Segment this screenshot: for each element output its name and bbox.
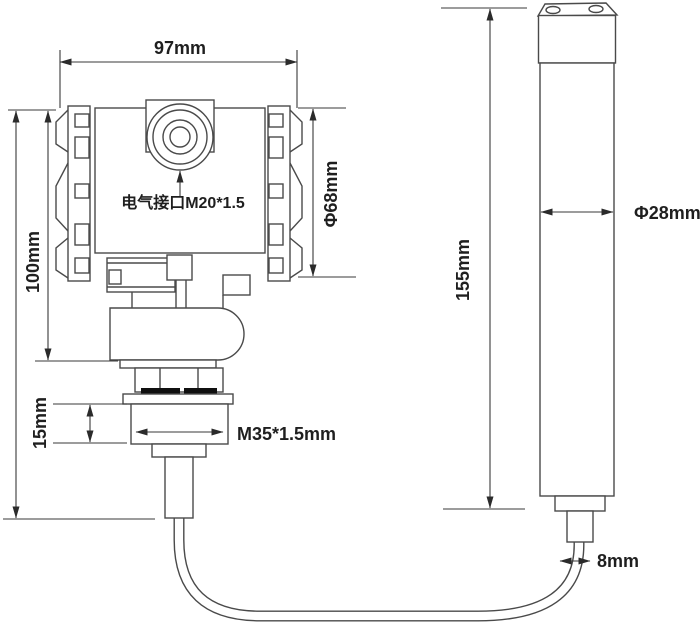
dim-label-thread-height: 15mm [30,397,50,449]
connection-cable [179,514,579,616]
left-fin-cap [56,106,90,281]
dim-head-width: 97mm [60,38,297,108]
lower-bracket [107,255,250,308]
block-lip [120,360,216,368]
dim-label-thread-spec: M35*1.5mm [237,424,336,444]
dim-label-head-diameter: Φ68mm [321,161,341,228]
flange-washer [123,394,233,404]
probe-body [540,63,614,496]
probe-cap [539,16,616,64]
dim-probe-length: 155mm [441,8,527,509]
dim-label-probe-diameter: Φ28mm [634,203,700,223]
process-connection-block [110,308,244,360]
dim-label-head-width: 97mm [154,38,206,58]
dim-label-head-height: 100mm [23,231,43,293]
mounting-nut [135,368,223,394]
right-fin-cap [268,106,302,281]
probe-cable-fitting [567,511,593,542]
cable-tube [165,457,193,518]
drawing-canvas: 97mm 电气接口M20*1.5 100mm Φ68mm [0,0,700,629]
collar [152,444,206,457]
thread-section [131,404,228,444]
probe-cap-hole-right [589,6,603,13]
probe-step [555,496,605,511]
dim-label-probe-length: 155mm [453,239,473,301]
dim-head-diameter: Φ68mm [298,108,356,277]
probe [538,3,617,542]
dim-label-electrical-port: 电气接口M20*1.5 [121,193,245,212]
dimension-drawing: 97mm 电气接口M20*1.5 100mm Φ68mm [0,0,700,629]
dim-thread-height: 15mm [30,397,127,449]
transmitter-head [56,100,302,518]
probe-cap-hole-left [546,7,560,14]
dim-label-cable-diameter: 8mm [597,551,639,571]
sight-glass [146,100,214,170]
